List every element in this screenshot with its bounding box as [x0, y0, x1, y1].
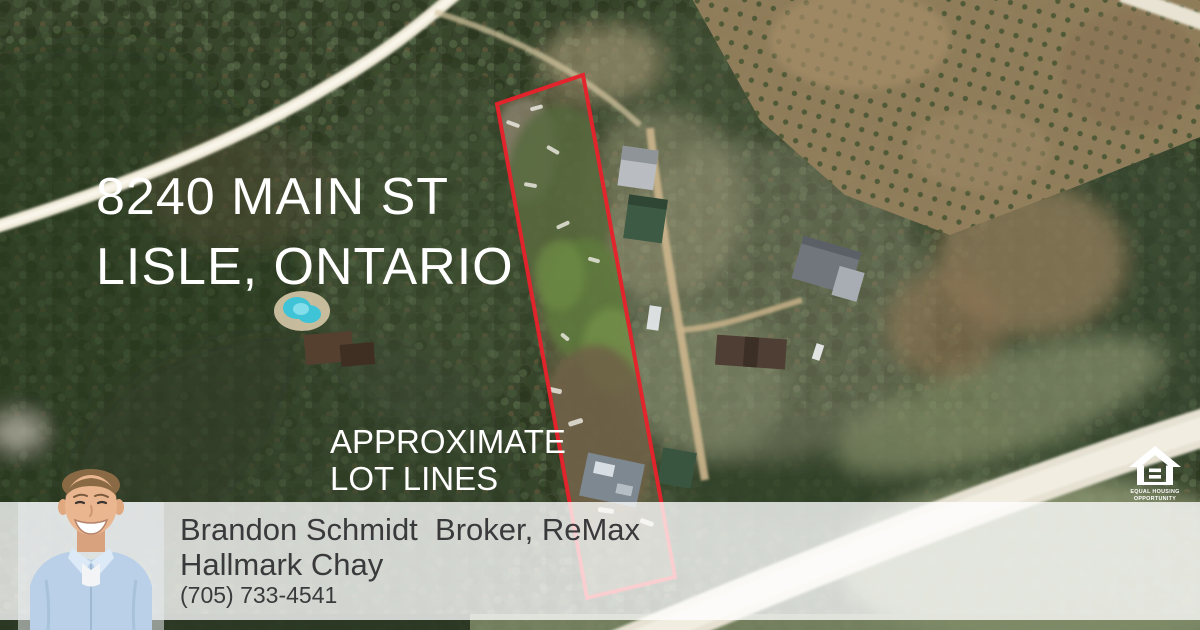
agent-banner: Brandon Schmidt Broker, ReMax Hallmark C… [0, 502, 1200, 620]
page-title: 8240 MAIN ST LISLE, ONTARIO [96, 162, 514, 302]
agent-phone: (705) 733-4541 [180, 582, 640, 609]
agent-name-title: Brandon Schmidt Broker, ReMax [180, 512, 640, 547]
gray-shed [617, 146, 658, 191]
agent-photo [16, 460, 166, 630]
lot-note-line-2: LOT LINES [330, 460, 566, 497]
equals-bar-bottom [1149, 475, 1161, 479]
address-line-1: 8240 MAIN ST [96, 162, 514, 232]
brown-roof-house [715, 335, 787, 370]
agent-brokerage: Hallmark Chay [180, 547, 640, 582]
lot-note-line-1: APPROXIMATE [330, 423, 566, 460]
green-roof-building [623, 194, 668, 243]
agent-info: Brandon Schmidt Broker, ReMax Hallmark C… [180, 512, 640, 609]
address-line-2: LISLE, ONTARIO [96, 232, 514, 302]
listing-graphic: 8240 MAIN ST LISLE, ONTARIO APPROXIMATE … [0, 0, 1200, 630]
equal-housing-logo: EQUAL HOUSING OPPORTUNITY [1124, 444, 1186, 504]
equal-housing-house-icon [1129, 446, 1181, 485]
equals-bar-top [1149, 469, 1161, 473]
green-roof-building-south [657, 447, 697, 488]
lot-lines-note: APPROXIMATE LOT LINES [330, 423, 566, 497]
equal-housing-text-line-1: EQUAL HOUSING [1130, 489, 1179, 495]
